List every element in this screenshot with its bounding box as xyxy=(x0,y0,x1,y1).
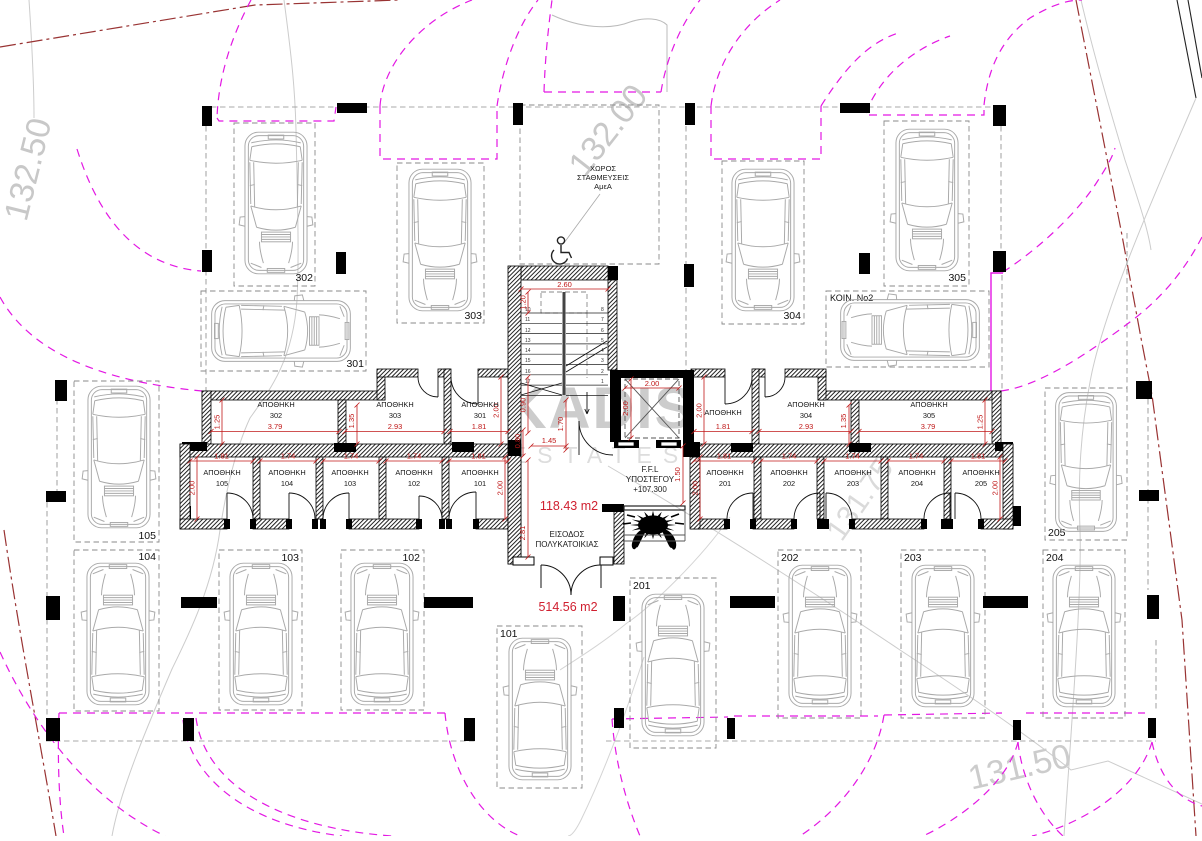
svg-text:1.74: 1.74 xyxy=(281,452,296,461)
svg-text:2.00: 2.00 xyxy=(188,481,197,496)
svg-text:305: 305 xyxy=(923,411,935,420)
svg-text:102: 102 xyxy=(408,479,420,488)
svg-text:205: 205 xyxy=(1048,527,1066,539)
svg-text:ΑΠΟΘΗΚΗ: ΑΠΟΘΗΚΗ xyxy=(395,468,432,477)
svg-text:13: 13 xyxy=(525,338,531,344)
svg-text:105: 105 xyxy=(138,530,156,542)
svg-text:2.00: 2.00 xyxy=(691,481,700,496)
svg-text:11: 11 xyxy=(525,317,530,323)
svg-text:ΑΠΟΘΗΚΗ: ΑΠΟΘΗΚΗ xyxy=(706,468,743,477)
svg-text:202: 202 xyxy=(783,479,795,488)
svg-text:1.50: 1.50 xyxy=(673,467,682,482)
svg-text:101: 101 xyxy=(500,628,518,640)
svg-text:1.81: 1.81 xyxy=(717,452,732,461)
svg-text:1.74: 1.74 xyxy=(782,452,797,461)
svg-text:ΑΠΟΘΗΚΗ: ΑΠΟΘΗΚΗ xyxy=(376,400,413,409)
svg-text:2.93: 2.93 xyxy=(388,422,403,431)
svg-text:1.81: 1.81 xyxy=(472,422,487,431)
svg-text:203: 203 xyxy=(847,479,859,488)
svg-text:204: 204 xyxy=(911,479,923,488)
svg-text:ΚΟΙΝ. Νο2: ΚΟΙΝ. Νο2 xyxy=(830,293,873,303)
svg-text:301: 301 xyxy=(474,411,486,420)
svg-text:1.81: 1.81 xyxy=(716,422,731,431)
svg-text:3.79: 3.79 xyxy=(921,422,936,431)
svg-text:1.25: 1.25 xyxy=(213,415,222,430)
svg-text:1.20: 1.20 xyxy=(519,295,528,310)
svg-text:ΑΠΟΘΗΚΗ: ΑΠΟΘΗΚΗ xyxy=(268,468,305,477)
svg-text:304: 304 xyxy=(783,310,801,322)
svg-text:2.00: 2.00 xyxy=(695,403,704,418)
svg-text:1.81: 1.81 xyxy=(214,452,229,461)
svg-text:101: 101 xyxy=(474,479,486,488)
svg-text:6: 6 xyxy=(601,328,604,334)
svg-text:ΑμεΑ: ΑμεΑ xyxy=(594,182,612,191)
svg-text:ΑΠΟΘΗΚΗ: ΑΠΟΘΗΚΗ xyxy=(704,408,741,417)
svg-text:ΑΠΟΘΗΚΗ: ΑΠΟΘΗΚΗ xyxy=(910,400,947,409)
svg-text:2: 2 xyxy=(601,369,604,375)
svg-text:5: 5 xyxy=(601,338,604,344)
svg-text:ΣΤΑΘΜΕΥΣΕΙΣ: ΣΤΑΘΜΕΥΣΕΙΣ xyxy=(577,173,629,182)
svg-text:514.56 m2: 514.56 m2 xyxy=(538,600,597,614)
svg-text:ΑΠΟΘΗΚΗ: ΑΠΟΘΗΚΗ xyxy=(461,468,498,477)
svg-text:301: 301 xyxy=(346,358,364,370)
svg-text:304: 304 xyxy=(800,411,812,420)
svg-text:0.90: 0.90 xyxy=(519,398,528,413)
svg-text:305: 305 xyxy=(948,272,966,284)
svg-text:ΑΠΟΘΗΚΗ: ΑΠΟΘΗΚΗ xyxy=(461,400,498,409)
svg-text:1.81: 1.81 xyxy=(471,452,486,461)
svg-text:1.70: 1.70 xyxy=(556,417,565,432)
svg-text:2.00: 2.00 xyxy=(496,481,505,496)
svg-text:3: 3 xyxy=(601,358,604,364)
svg-text:ΑΠΟΘΗΚΗ: ΑΠΟΘΗΚΗ xyxy=(257,400,294,409)
svg-text:1.35: 1.35 xyxy=(839,414,848,429)
svg-text:2.00: 2.00 xyxy=(991,481,1000,496)
svg-text:4: 4 xyxy=(601,348,604,354)
svg-text:2.60: 2.60 xyxy=(557,280,572,289)
svg-text:2.93: 2.93 xyxy=(799,422,814,431)
svg-text:ΑΠΟΘΗΚΗ: ΑΠΟΘΗΚΗ xyxy=(787,400,824,409)
svg-text:ΑΠΟΘΗΚΗ: ΑΠΟΘΗΚΗ xyxy=(962,468,999,477)
svg-text:1.74: 1.74 xyxy=(909,452,924,461)
svg-text:0.80: 0.80 xyxy=(513,434,522,449)
svg-text:105: 105 xyxy=(216,479,228,488)
svg-text:1: 1 xyxy=(601,379,604,385)
svg-text:8: 8 xyxy=(601,307,604,313)
svg-text:104: 104 xyxy=(138,551,156,563)
svg-text:201: 201 xyxy=(719,479,731,488)
svg-text:7: 7 xyxy=(601,317,604,323)
svg-text:1.35: 1.35 xyxy=(347,414,356,429)
svg-text:202: 202 xyxy=(781,552,799,564)
svg-text:103: 103 xyxy=(281,552,299,564)
svg-text:203: 203 xyxy=(904,552,922,564)
svg-text:205: 205 xyxy=(975,479,987,488)
svg-text:104: 104 xyxy=(281,479,293,488)
svg-text:+107.300: +107.300 xyxy=(633,485,667,494)
svg-text:2.81: 2.81 xyxy=(518,526,527,541)
svg-text:12: 12 xyxy=(525,328,531,334)
svg-text:ΧΩΡΟΣ: ΧΩΡΟΣ xyxy=(590,164,616,173)
svg-text:2.00: 2.00 xyxy=(645,379,660,388)
svg-text:3.79: 3.79 xyxy=(268,422,283,431)
svg-text:201: 201 xyxy=(633,580,651,592)
svg-text:103: 103 xyxy=(344,479,356,488)
svg-text:KADIS: KADIS xyxy=(505,376,695,441)
svg-text:F.F.L: F.F.L xyxy=(642,465,659,474)
svg-text:302: 302 xyxy=(295,272,313,284)
svg-text:2.00: 2.00 xyxy=(621,401,630,416)
svg-text:102: 102 xyxy=(402,552,420,564)
svg-text:ΑΠΟΘΗΚΗ: ΑΠΟΘΗΚΗ xyxy=(331,468,368,477)
svg-text:1.81: 1.81 xyxy=(971,452,986,461)
svg-text:ΑΠΟΘΗΚΗ: ΑΠΟΘΗΚΗ xyxy=(898,468,935,477)
svg-text:ΑΠΟΘΗΚΗ: ΑΠΟΘΗΚΗ xyxy=(834,468,871,477)
svg-text:1.45: 1.45 xyxy=(542,436,557,445)
svg-text:15: 15 xyxy=(525,358,531,364)
svg-text:303: 303 xyxy=(389,411,401,420)
svg-text:ΑΠΟΘΗΚΗ: ΑΠΟΘΗΚΗ xyxy=(770,468,807,477)
svg-text:303: 303 xyxy=(464,310,482,322)
svg-text:14: 14 xyxy=(525,348,531,354)
svg-text:1.74: 1.74 xyxy=(845,452,860,461)
svg-text:204: 204 xyxy=(1046,552,1064,564)
svg-text:ΥΠΟΣΤΕΓΟΥ: ΥΠΟΣΤΕΓΟΥ xyxy=(626,475,675,484)
svg-text:118.43 m2: 118.43 m2 xyxy=(540,499,598,513)
svg-text:ΑΠΟΘΗΚΗ: ΑΠΟΘΗΚΗ xyxy=(203,468,240,477)
svg-text:302: 302 xyxy=(270,411,282,420)
svg-text:16: 16 xyxy=(525,369,531,375)
svg-text:1.74: 1.74 xyxy=(407,452,422,461)
svg-text:ΕΙΣΟΔΟΣ: ΕΙΣΟΔΟΣ xyxy=(550,530,585,539)
svg-text:1.25: 1.25 xyxy=(976,415,985,430)
svg-text:1.74: 1.74 xyxy=(344,452,359,461)
svg-text:ΠΟΛΥΚΑΤΟΙΚΙΑΣ: ΠΟΛΥΚΑΤΟΙΚΙΑΣ xyxy=(535,540,598,549)
